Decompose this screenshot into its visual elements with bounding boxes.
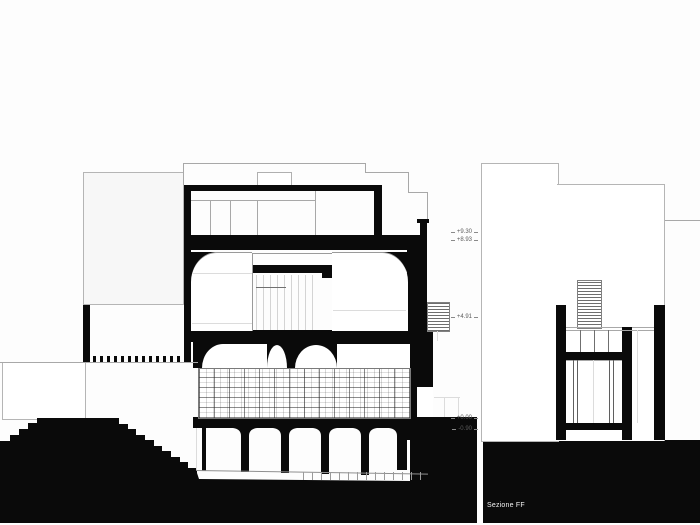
level-tick bbox=[474, 240, 478, 241]
level-label: +8.93 bbox=[457, 237, 472, 243]
level-marker-930: +9.30 bbox=[448, 229, 478, 235]
basement-pier-4 bbox=[353, 428, 377, 475]
level-tick bbox=[474, 232, 478, 233]
right-window-mullion-3 bbox=[608, 330, 609, 352]
basement-pier-1 bbox=[233, 428, 257, 472]
right-door-center-line bbox=[593, 360, 594, 423]
level-marker-neg090: -0.90 bbox=[448, 426, 478, 432]
level-dash bbox=[451, 232, 455, 233]
right-door-jamb-2a bbox=[609, 360, 610, 423]
level-tick bbox=[474, 418, 478, 419]
first-floor-slab bbox=[184, 330, 427, 342]
stair-shaft-rails bbox=[256, 275, 316, 330]
terrace-wall bbox=[83, 305, 90, 362]
right-room-shelf-line bbox=[333, 310, 406, 311]
ceiling-flat-bay bbox=[223, 344, 267, 368]
level-label: +4.91 bbox=[457, 314, 472, 320]
basement-pier-left-thin bbox=[202, 428, 206, 471]
right-tower-outline bbox=[481, 163, 559, 442]
basement-left-edge bbox=[196, 428, 197, 471]
terrace-balustrade bbox=[93, 356, 181, 362]
right-door-jamb-2b bbox=[613, 360, 614, 423]
right-wall-extension bbox=[427, 330, 433, 387]
right-door-jamb-1a bbox=[573, 360, 574, 423]
level-marker-000: +0.00 bbox=[448, 415, 478, 421]
basement-pier-3 bbox=[313, 428, 337, 474]
balcony-ladder bbox=[427, 302, 450, 332]
level-dash bbox=[451, 418, 455, 419]
terrace-line bbox=[0, 362, 198, 363]
right-bay-line bbox=[637, 330, 638, 423]
right-window-mullion-1 bbox=[580, 330, 581, 352]
right-stair-flight bbox=[577, 280, 602, 329]
section-caption: Sezione FF bbox=[487, 502, 525, 509]
level-marker-893: +8.93 bbox=[448, 237, 478, 243]
right-floor-line bbox=[557, 327, 664, 328]
ceiling-flat-bay-right bbox=[337, 344, 410, 368]
upper-right-wall bbox=[374, 185, 382, 237]
attic-partition-2 bbox=[230, 200, 231, 235]
ground-right-mass bbox=[483, 440, 700, 523]
level-dash bbox=[451, 240, 455, 241]
right-pier-right bbox=[654, 305, 665, 440]
second-floor-slab bbox=[184, 235, 427, 250]
library-shelving-wall bbox=[198, 368, 411, 419]
level-label: +0.00 bbox=[457, 415, 472, 421]
basement-wall-right bbox=[389, 428, 407, 470]
level-tick bbox=[474, 429, 478, 430]
right-pier-left bbox=[556, 305, 566, 440]
first-floor-left-room bbox=[191, 252, 252, 331]
right-base-band bbox=[556, 423, 632, 430]
level-dash bbox=[452, 429, 456, 430]
first-floor-right-room bbox=[332, 252, 408, 331]
level-label: +9.30 bbox=[457, 229, 472, 235]
right-sill-band bbox=[566, 352, 622, 360]
section-drawing-sheet: +9.30 +8.93 +4.91 +0.00 -0.90 Sezione FF bbox=[0, 0, 700, 525]
basement-pier-2 bbox=[273, 428, 297, 473]
level-tick bbox=[474, 317, 478, 318]
basement-floor-ticks bbox=[303, 472, 427, 480]
parapet-post bbox=[420, 222, 427, 236]
attic-partition-1 bbox=[210, 200, 211, 235]
attic-partition-3 bbox=[257, 200, 258, 235]
stair-handrail-line bbox=[256, 287, 286, 288]
level-dash bbox=[451, 317, 455, 318]
attic-partition-4 bbox=[315, 191, 316, 235]
balcony-bracket bbox=[437, 331, 438, 341]
left-room-shelf-line-2 bbox=[192, 323, 252, 324]
level-marker-491: +4.91 bbox=[448, 314, 478, 320]
left-room-shelf-line-1 bbox=[192, 273, 252, 274]
right-door-jamb-1b bbox=[577, 360, 578, 423]
level-label: -0.90 bbox=[458, 426, 472, 432]
roof-slab bbox=[184, 185, 380, 191]
right-window-mullion-2 bbox=[594, 330, 595, 352]
